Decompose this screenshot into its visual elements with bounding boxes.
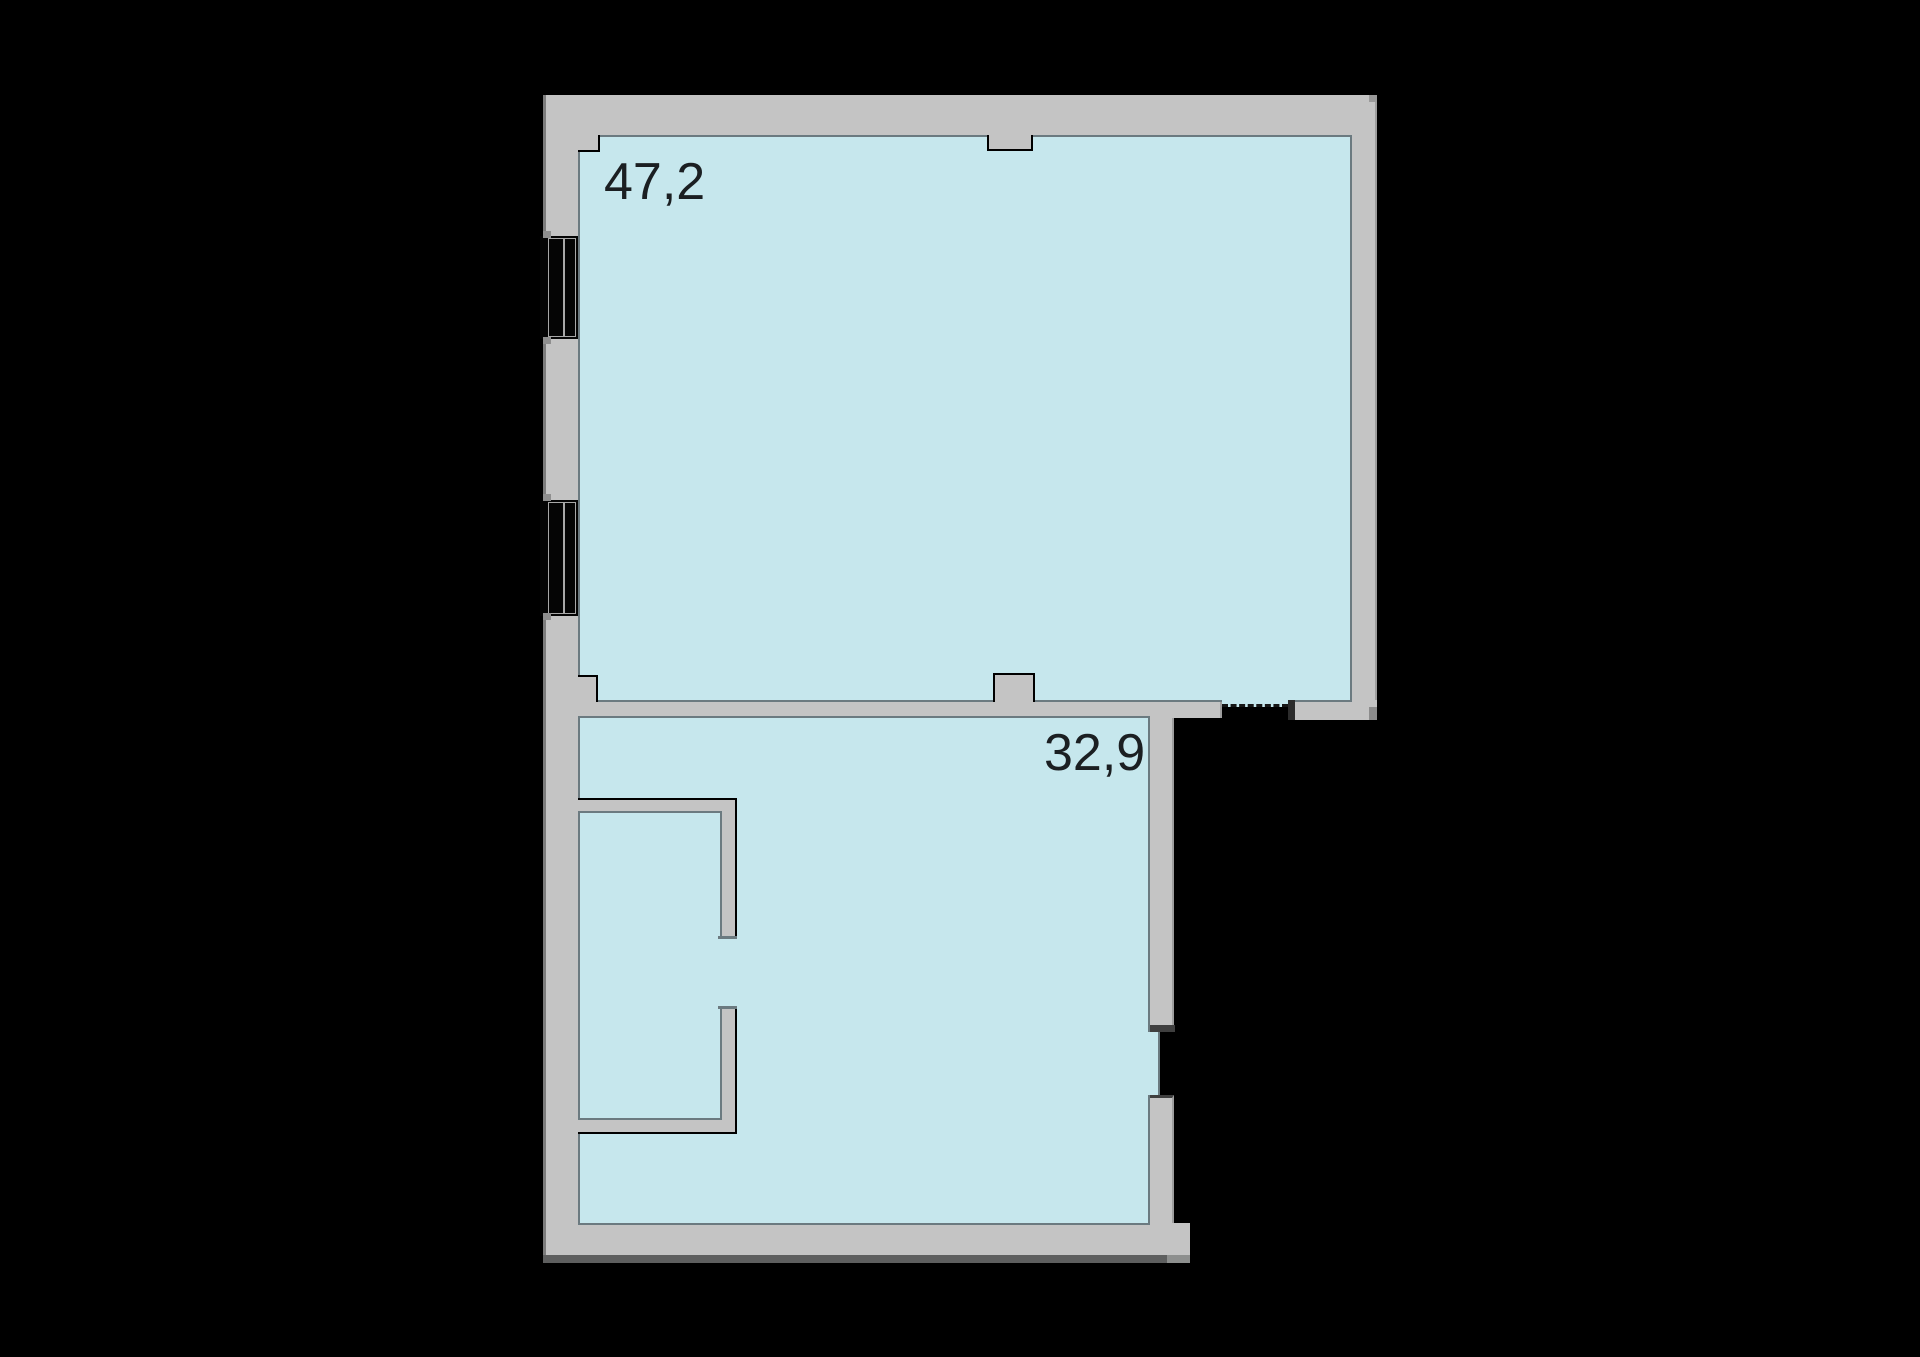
divider-wall-right [1294, 700, 1377, 720]
right-wall-bottom-cap [1369, 707, 1377, 720]
lower-opening-cap [1150, 1025, 1175, 1032]
closet-door-jamb-bottom [718, 1006, 737, 1009]
closet-interior-floor [578, 811, 722, 1120]
lower-room-area-label: 32,9 [1044, 727, 1145, 779]
lower-right-wall-lower [1148, 1095, 1174, 1223]
window-1-cap-top [543, 231, 551, 238]
top-right-corner-cap [1369, 95, 1377, 102]
window-2-cap-top [543, 494, 551, 501]
divider-wall-pier [993, 673, 1035, 702]
window-2-frame [548, 502, 576, 614]
divider-dashed-opening [1222, 697, 1288, 707]
upper-room-top-left-step [578, 135, 600, 152]
window-1 [540, 236, 578, 339]
window-2-seam [563, 502, 565, 614]
closet-door-opening [714, 939, 744, 1006]
window-2 [540, 500, 578, 616]
bottom-wall [543, 1223, 1190, 1255]
right-wall-upper [1350, 95, 1377, 720]
lower-right-wall-upper [1148, 718, 1174, 1025]
lower-room-right-opening [1148, 1032, 1160, 1095]
upper-room-bottom-left-step [578, 675, 598, 702]
window-2-cap-bottom [543, 613, 551, 620]
upper-room-floor [578, 135, 1352, 702]
window-1-frame [548, 238, 576, 337]
window-1-cap-bottom [543, 337, 551, 344]
window-1-seam [563, 238, 565, 337]
top-wall-notch [987, 135, 1033, 151]
bottom-shadow-strip [543, 1255, 1167, 1263]
closet-door-jamb-top [718, 936, 737, 939]
top-wall [543, 95, 1377, 137]
upper-room-area-label: 47,2 [604, 156, 705, 208]
bottom-shadow-strip-end [1167, 1255, 1190, 1263]
floor-plan: 47,2 32,9 [0, 0, 1920, 1357]
divider-opening-jamb [1288, 700, 1295, 720]
